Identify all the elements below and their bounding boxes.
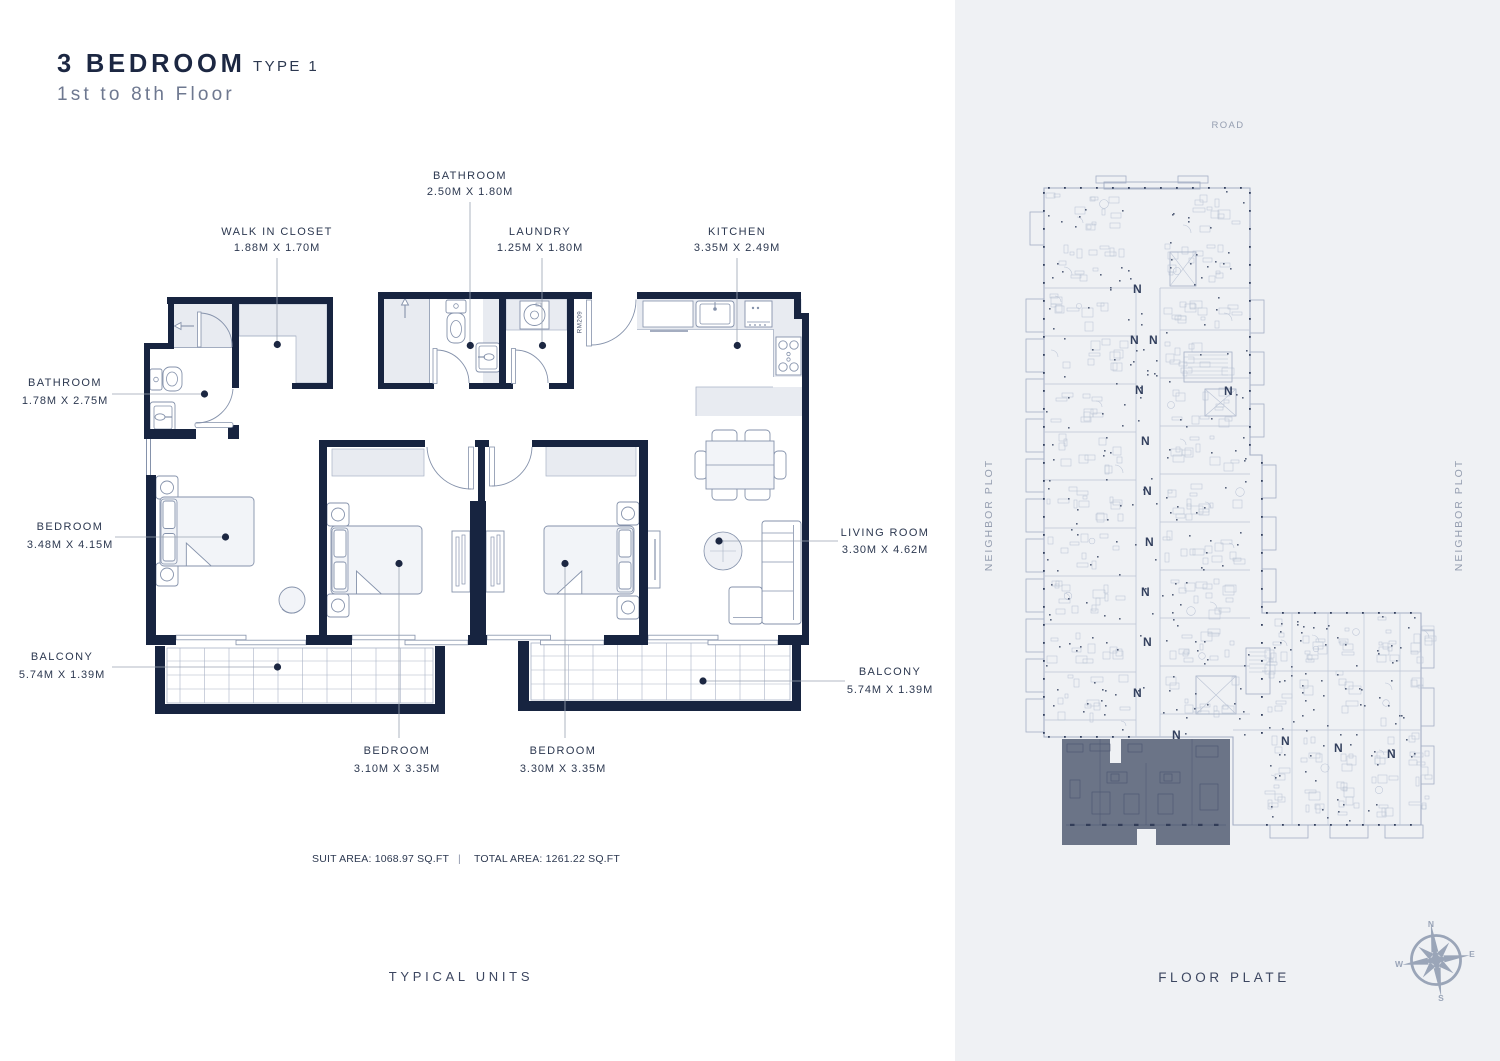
svg-text:BEDROOM: BEDROOM [37, 521, 104, 533]
svg-text:3.48M X 4.15M: 3.48M X 4.15M [27, 539, 113, 551]
svg-text:N: N [1334, 741, 1343, 755]
svg-text:N: N [1130, 333, 1139, 347]
svg-text:3.30M X 4.62M: 3.30M X 4.62M [842, 544, 928, 556]
svg-text:BEDROOM: BEDROOM [364, 745, 431, 757]
svg-text:1.25M X 1.80M: 1.25M X 1.80M [497, 242, 583, 254]
svg-text:W: W [1395, 959, 1404, 969]
svg-text:N: N [1224, 384, 1233, 398]
svg-text:NEIGHBOR PLOT: NEIGHBOR PLOT [983, 459, 995, 571]
svg-text:TYPE 1: TYPE 1 [253, 58, 319, 75]
svg-text:NEIGHBOR PLOT: NEIGHBOR PLOT [1453, 459, 1465, 571]
svg-text:BEDROOM: BEDROOM [530, 745, 597, 757]
svg-text:BALCONY: BALCONY [31, 651, 93, 663]
svg-text:N: N [1149, 333, 1158, 347]
svg-text:3.35M X 2.49M: 3.35M X 2.49M [694, 242, 780, 254]
svg-text:BATHROOM: BATHROOM [28, 377, 102, 389]
svg-text:3 BEDROOM: 3 BEDROOM [57, 50, 246, 78]
svg-text:3.30M X 3.35M: 3.30M X 3.35M [520, 763, 606, 775]
svg-text:N: N [1141, 585, 1150, 599]
svg-text:N: N [1141, 434, 1150, 448]
svg-text:N: N [1133, 686, 1142, 700]
svg-text:N: N [1428, 919, 1434, 929]
svg-text:BATHROOM: BATHROOM [433, 170, 507, 182]
svg-text:FLOOR PLATE: FLOOR PLATE [1158, 970, 1290, 985]
svg-text:|: | [458, 853, 461, 865]
svg-text:RM209: RM209 [577, 311, 584, 334]
svg-text:LAUNDRY: LAUNDRY [509, 226, 571, 238]
svg-text:1.78M X 2.75M: 1.78M X 2.75M [22, 395, 108, 407]
svg-text:N: N [1145, 535, 1154, 549]
svg-text:TYPICAL UNITS: TYPICAL UNITS [389, 969, 533, 984]
svg-text:TOTAL AREA: 1261.22 SQ.FT: TOTAL AREA: 1261.22 SQ.FT [474, 853, 620, 865]
svg-text:SUIT AREA: 1068.97 SQ.FT: SUIT AREA: 1068.97 SQ.FT [312, 853, 449, 865]
svg-text:ROAD: ROAD [1211, 120, 1244, 131]
svg-text:N: N [1387, 747, 1396, 761]
svg-text:S: S [1438, 993, 1444, 1003]
svg-text:2.50M X 1.80M: 2.50M X 1.80M [427, 186, 513, 198]
svg-text:N: N [1135, 383, 1144, 397]
svg-text:N: N [1281, 734, 1290, 748]
svg-text:N: N [1143, 635, 1152, 649]
svg-text:LIVING ROOM: LIVING ROOM [841, 527, 930, 539]
svg-text:N: N [1133, 282, 1142, 296]
svg-text:5.74M X 1.39M: 5.74M X 1.39M [847, 684, 933, 696]
svg-text:N: N [1143, 484, 1152, 498]
svg-text:1.88M X 1.70M: 1.88M X 1.70M [234, 242, 320, 254]
svg-text:3.10M X 3.35M: 3.10M X 3.35M [354, 763, 440, 775]
svg-text:BALCONY: BALCONY [859, 666, 921, 678]
svg-text:5.74M X 1.39M: 5.74M X 1.39M [19, 669, 105, 681]
svg-text:KITCHEN: KITCHEN [708, 226, 766, 238]
svg-text:WALK IN CLOSET: WALK IN CLOSET [221, 226, 333, 238]
svg-text:E: E [1469, 949, 1475, 959]
svg-text:1st to 8th Floor: 1st to 8th Floor [57, 84, 235, 105]
